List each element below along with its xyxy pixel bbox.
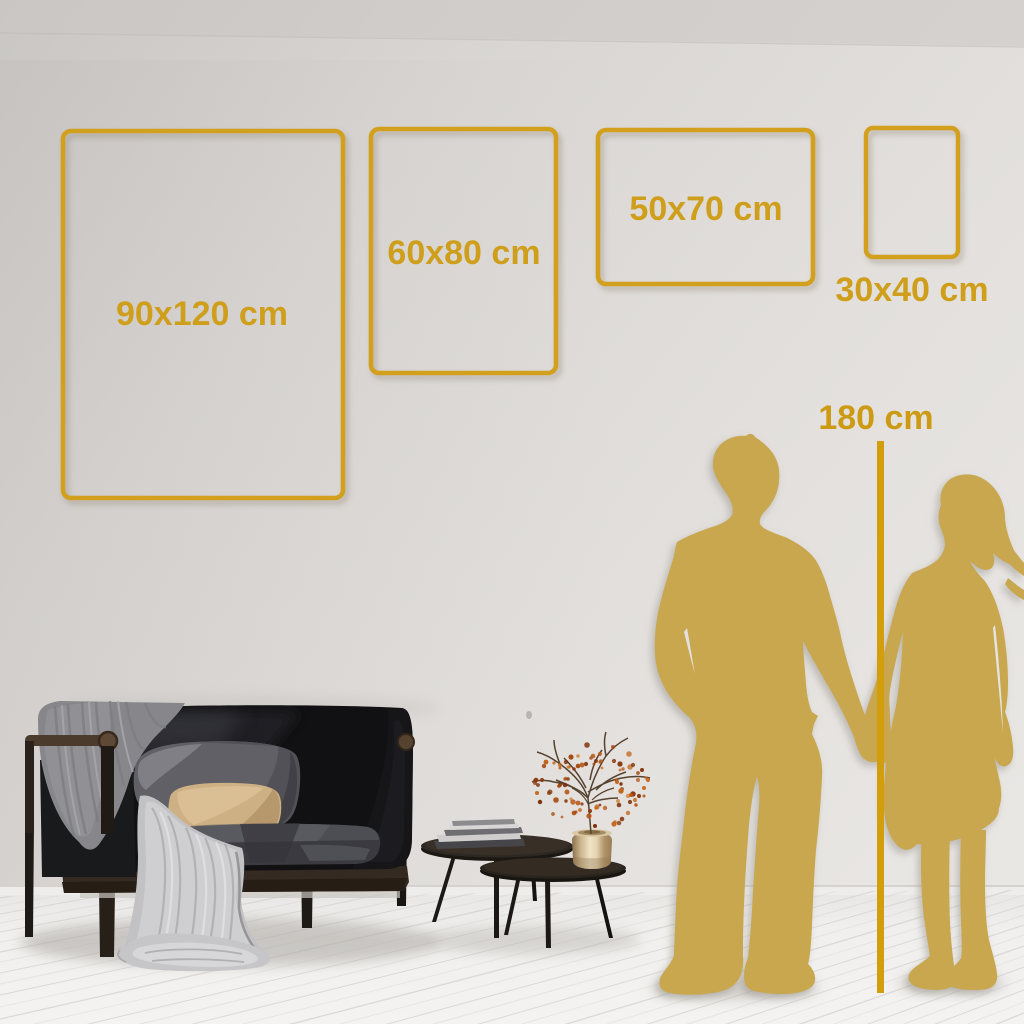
svg-text:90x120 cm: 90x120 cm — [116, 295, 288, 333]
svg-text:30x40 cm: 30x40 cm — [835, 271, 988, 309]
svg-text:50x70 cm: 50x70 cm — [629, 190, 782, 228]
svg-text:60x80 cm: 60x80 cm — [387, 234, 540, 272]
svg-text:180 cm: 180 cm — [818, 399, 933, 437]
